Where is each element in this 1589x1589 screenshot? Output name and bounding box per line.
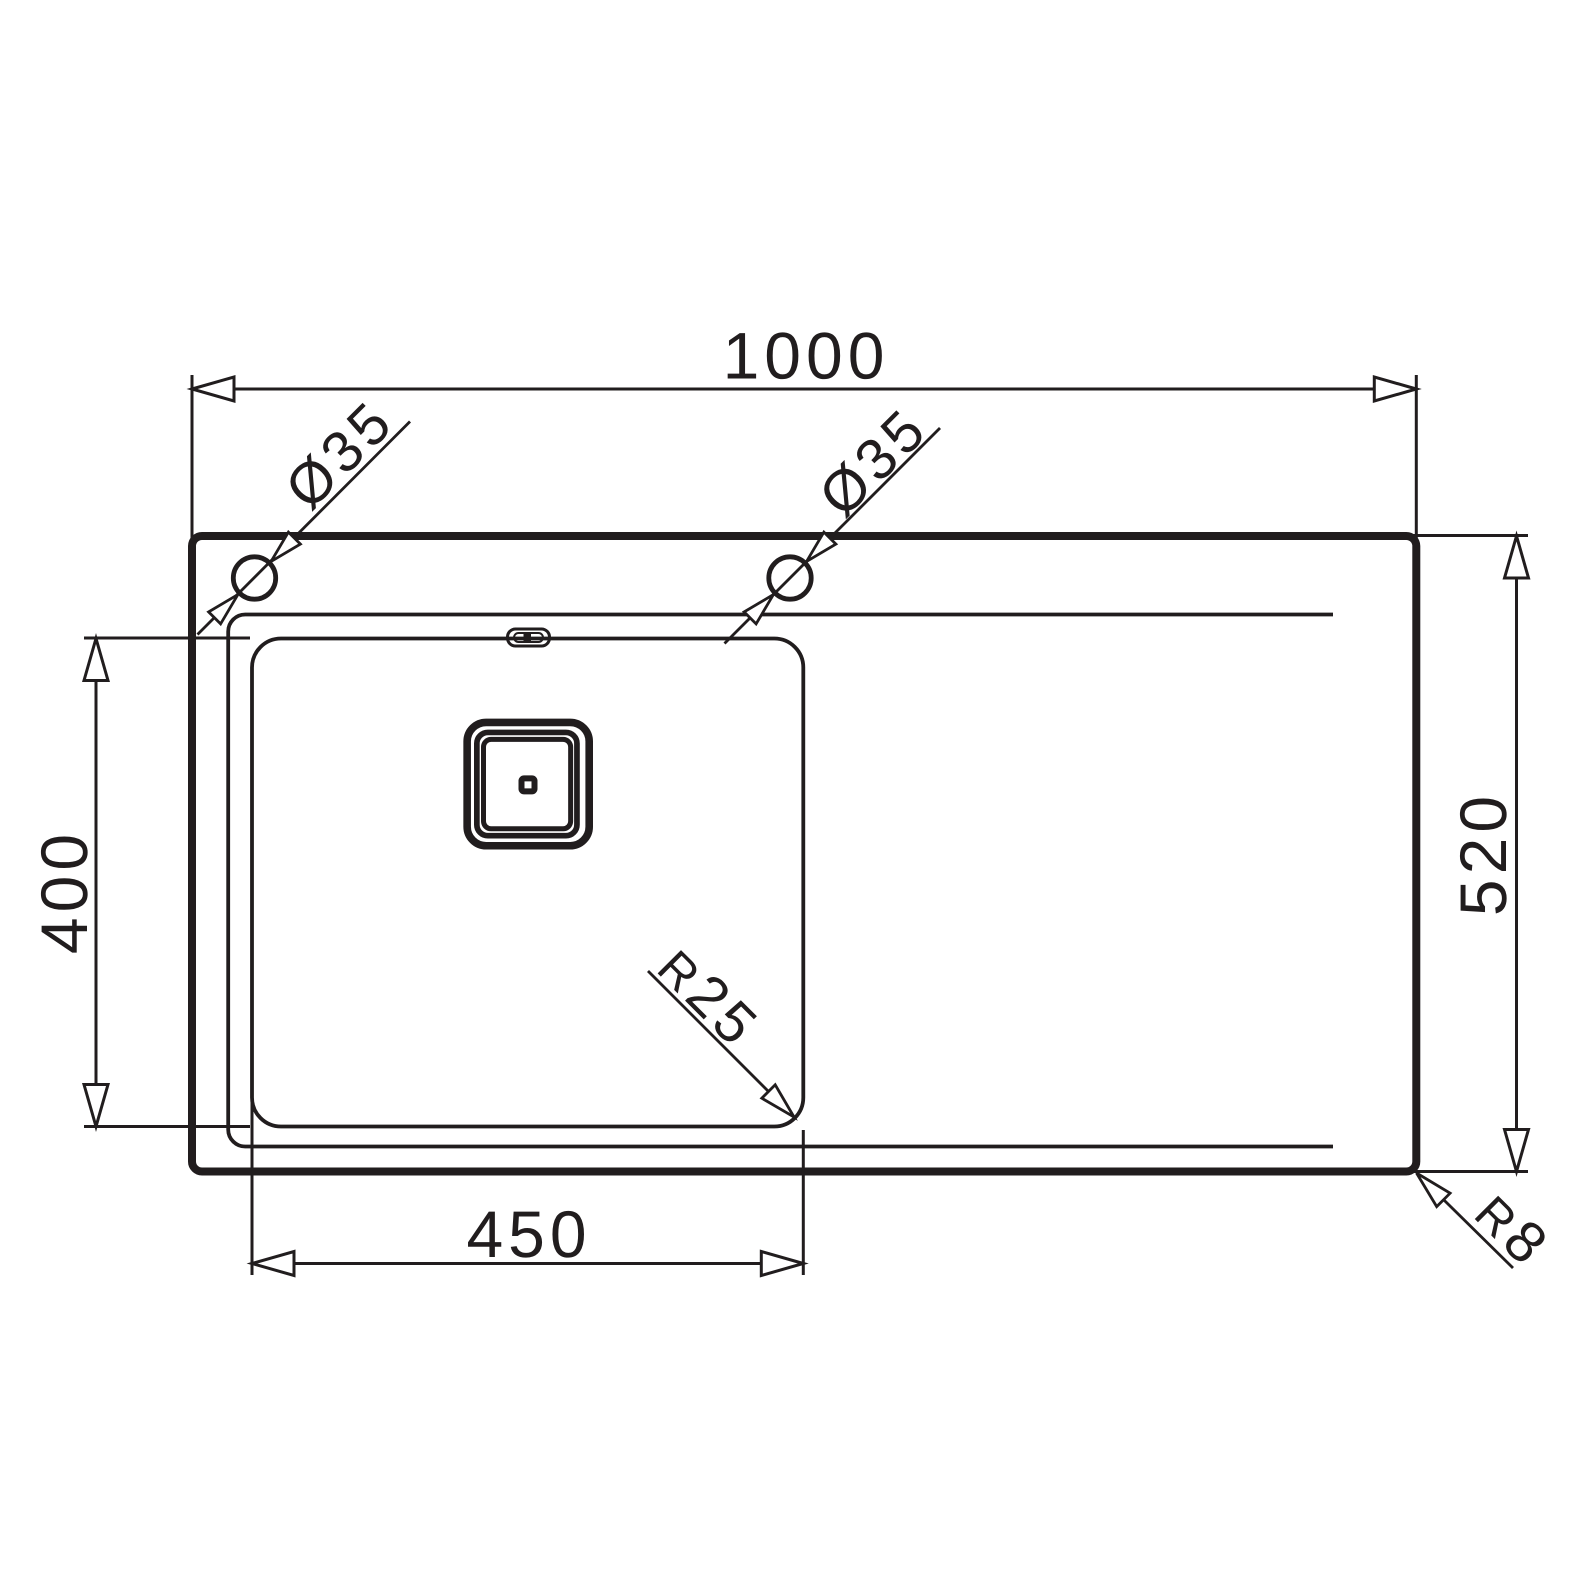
svg-text:1000: 1000: [723, 319, 890, 393]
svg-text:Ø35: Ø35: [273, 387, 407, 521]
svg-text:R8: R8: [1463, 1180, 1563, 1280]
svg-text:450: 450: [466, 1197, 591, 1271]
svg-text:400: 400: [27, 829, 101, 954]
svg-text:Ø35: Ø35: [807, 395, 941, 529]
svg-text:R25: R25: [646, 934, 773, 1061]
svg-text:520: 520: [1446, 791, 1520, 916]
